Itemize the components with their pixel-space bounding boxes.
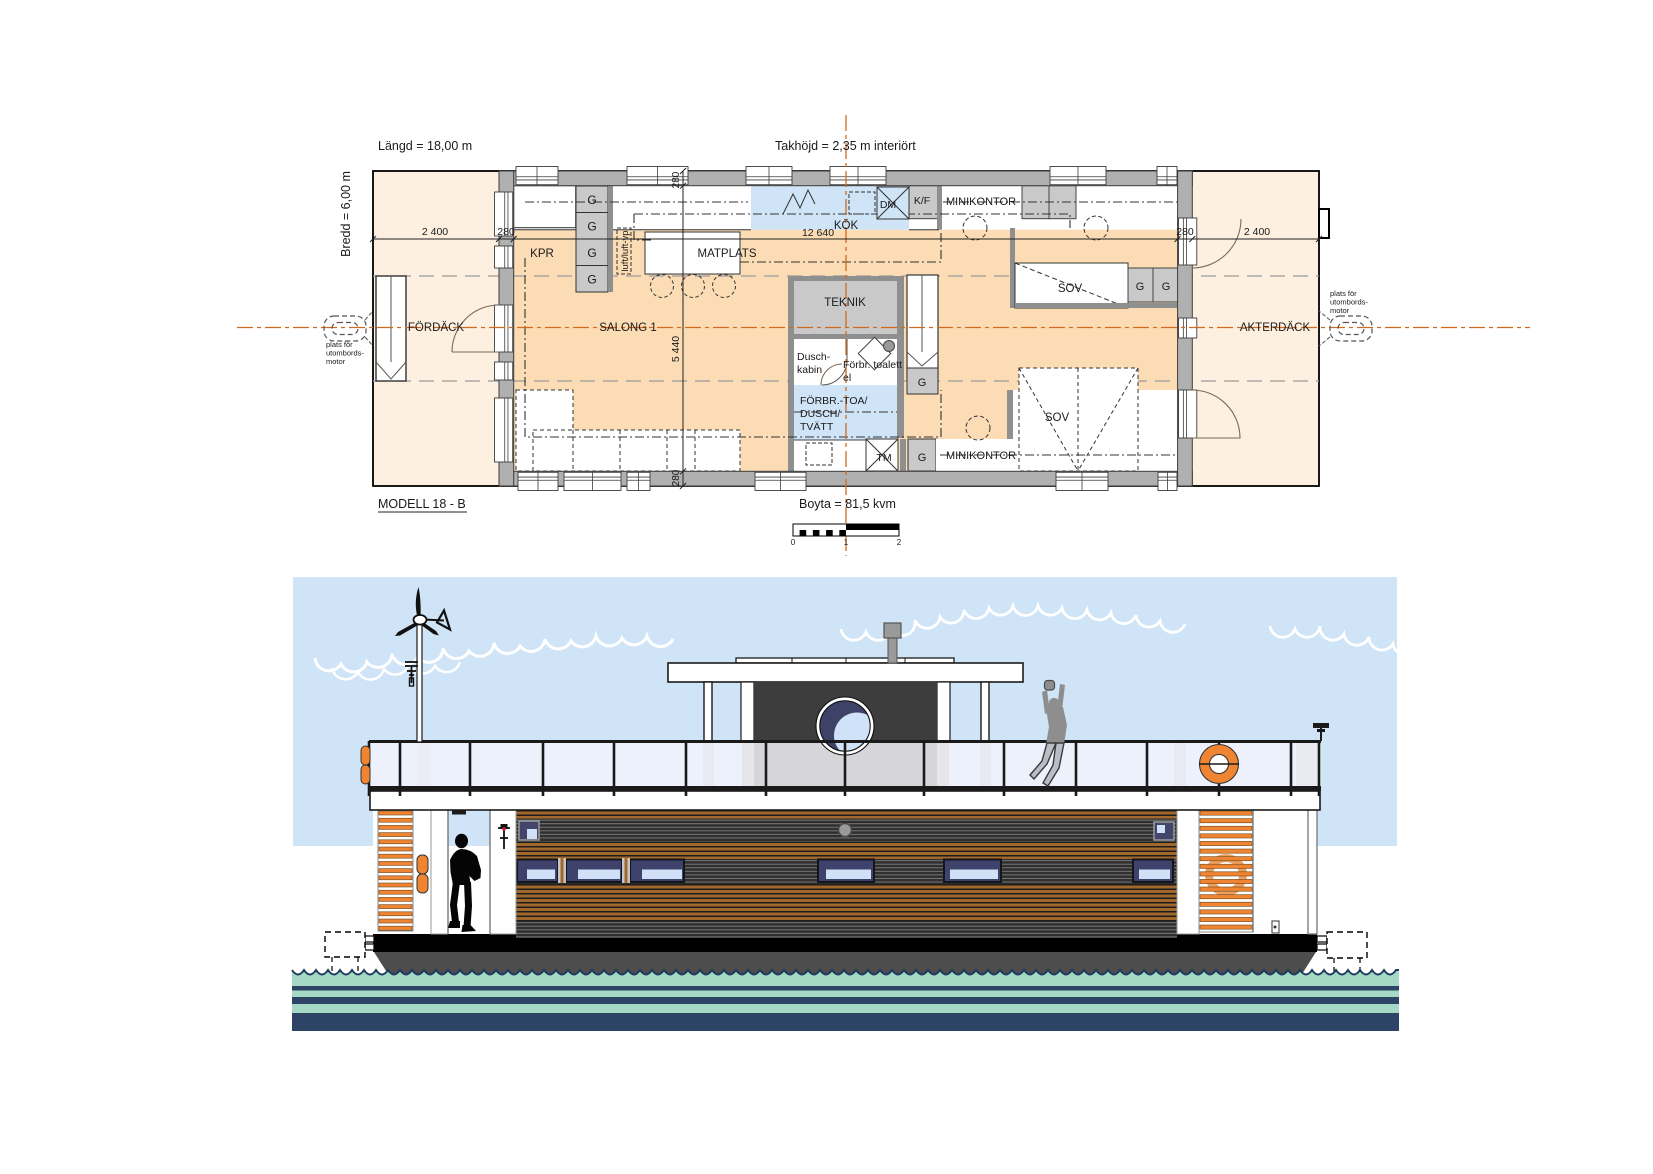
svg-text:motor: motor: [1330, 306, 1350, 315]
svg-text:G: G: [918, 452, 927, 464]
svg-text:TVÄTT: TVÄTT: [800, 421, 834, 433]
svg-text:SALONG 1: SALONG 1: [599, 322, 657, 334]
svg-text:5 440: 5 440: [670, 336, 682, 362]
svg-text:G: G: [1162, 281, 1171, 293]
svg-text:FÖRBR.-TOA/: FÖRBR.-TOA/: [800, 395, 868, 407]
svg-text:luft/luft-vp: luft/luft-vp: [620, 230, 631, 271]
svg-text:2 400: 2 400: [1244, 226, 1270, 238]
svg-text:280: 280: [671, 171, 682, 188]
svg-text:Dusch-: Dusch-: [797, 351, 831, 363]
svg-text:AKTERDÄCK: AKTERDÄCK: [1240, 322, 1311, 334]
svg-text:Bredd = 6,00 m: Bredd = 6,00 m: [339, 171, 353, 257]
svg-text:DM: DM: [880, 199, 896, 211]
svg-text:G: G: [587, 246, 596, 260]
svg-text:MINIKONTOR: MINIKONTOR: [946, 450, 1016, 462]
svg-text:FÖRDÄCK: FÖRDÄCK: [408, 322, 465, 334]
svg-text:MINIKONTOR: MINIKONTOR: [946, 196, 1016, 208]
svg-text:G: G: [587, 273, 596, 287]
svg-text:Takhöjd = 2,35 m interiört: Takhöjd = 2,35 m interiört: [775, 139, 916, 153]
svg-text:DUSCH/: DUSCH/: [800, 408, 840, 420]
svg-text:12 640: 12 640: [802, 227, 834, 239]
svg-text:TEKNIK: TEKNIK: [824, 297, 866, 309]
svg-text:0: 0: [791, 538, 796, 547]
svg-text:KPR: KPR: [530, 248, 554, 260]
svg-text:G: G: [1136, 281, 1145, 293]
svg-text:280: 280: [497, 226, 515, 238]
svg-text:2 400: 2 400: [422, 226, 448, 238]
svg-text:Boyta = 81,5 kvm: Boyta = 81,5 kvm: [799, 497, 896, 511]
svg-text:280: 280: [1176, 226, 1194, 238]
svg-text:SOV: SOV: [1045, 412, 1070, 424]
svg-text:el: el: [843, 372, 851, 384]
svg-text:1: 1: [844, 538, 849, 547]
svg-text:TM: TM: [876, 452, 891, 464]
svg-text:K/F: K/F: [914, 195, 930, 207]
svg-text:Längd = 18,00 m: Längd = 18,00 m: [378, 139, 472, 153]
svg-text:Förbr. toalett: Förbr. toalett: [843, 359, 902, 371]
svg-text:280: 280: [671, 469, 682, 486]
svg-text:MODELL 18 - B: MODELL 18 - B: [378, 497, 466, 511]
svg-text:motor: motor: [326, 357, 346, 366]
svg-text:SOV: SOV: [1058, 283, 1083, 295]
svg-text:MATPLATS: MATPLATS: [698, 248, 757, 260]
svg-text:KÖK: KÖK: [834, 220, 859, 232]
svg-text:G: G: [918, 377, 927, 389]
svg-text:kabin: kabin: [797, 364, 822, 376]
svg-text:G: G: [587, 220, 596, 234]
svg-text:G: G: [587, 193, 596, 207]
svg-text:2: 2: [897, 538, 902, 547]
